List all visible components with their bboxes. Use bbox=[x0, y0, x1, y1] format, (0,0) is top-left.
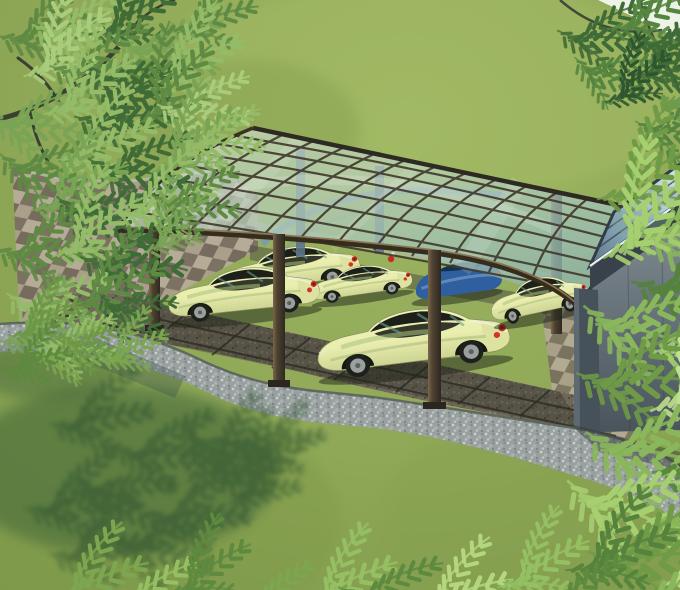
carport-scene-render: Aerial 3D rendering of an arched glass c… bbox=[0, 0, 680, 590]
scene-svg bbox=[0, 0, 680, 590]
